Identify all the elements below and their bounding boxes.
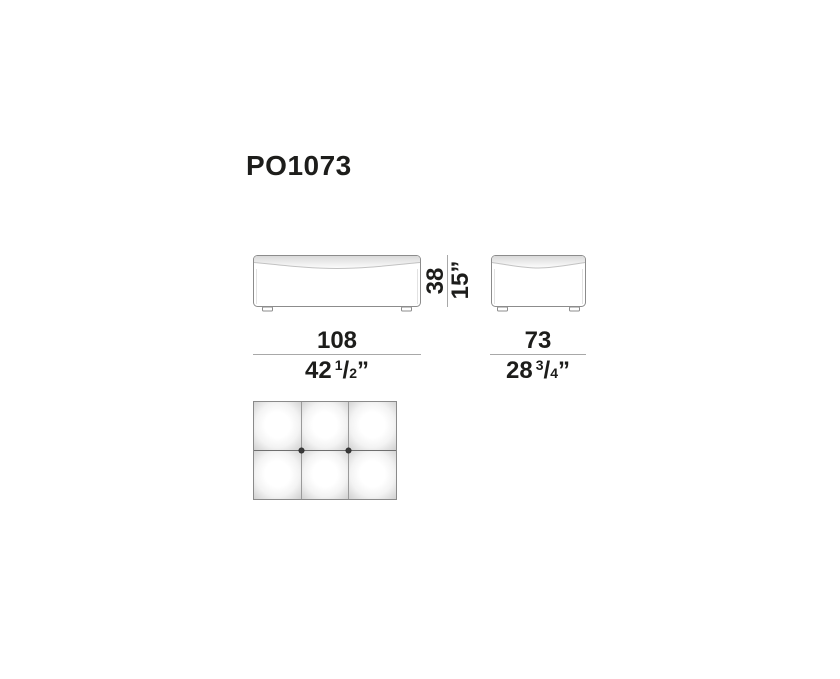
front-width-inch-mark: ” bbox=[357, 357, 369, 384]
front-width-fraction: 1/2 bbox=[335, 357, 357, 384]
front-width-cm-label: 108 bbox=[253, 329, 421, 353]
product-code: PO1073 bbox=[246, 152, 352, 180]
side-depth-cm-label: 73 bbox=[490, 329, 586, 353]
side-depth-inch-mark: ” bbox=[558, 357, 570, 384]
center-seam-line bbox=[254, 450, 396, 451]
side-depth-inches-whole: 28 bbox=[506, 357, 533, 384]
front-width-inches-label: 421/2” bbox=[253, 359, 421, 383]
side-depth-inches-label: 283/4” bbox=[490, 359, 586, 383]
tufting-button-dot bbox=[299, 448, 304, 453]
front-width-dimension-line bbox=[253, 354, 421, 355]
top-view-overlay bbox=[254, 402, 396, 499]
side-depth-fraction: 3/4 bbox=[536, 357, 558, 384]
side-foot-right bbox=[570, 307, 580, 311]
height-cm-label: 38 bbox=[424, 268, 448, 295]
side-depth-dimension-line bbox=[490, 354, 586, 355]
dimension-sheet: PO1073 38 15” bbox=[0, 0, 840, 679]
front-foot-left bbox=[263, 307, 273, 311]
tufting-button-dot bbox=[346, 448, 351, 453]
front-width-inches-whole: 42 bbox=[305, 357, 332, 384]
side-elevation-drawing bbox=[491, 255, 586, 313]
front-elevation-drawing bbox=[253, 255, 421, 313]
front-foot-right bbox=[402, 307, 412, 311]
top-plan-view bbox=[253, 401, 397, 500]
height-inches-label: 15” bbox=[449, 261, 473, 300]
side-foot-left bbox=[498, 307, 508, 311]
